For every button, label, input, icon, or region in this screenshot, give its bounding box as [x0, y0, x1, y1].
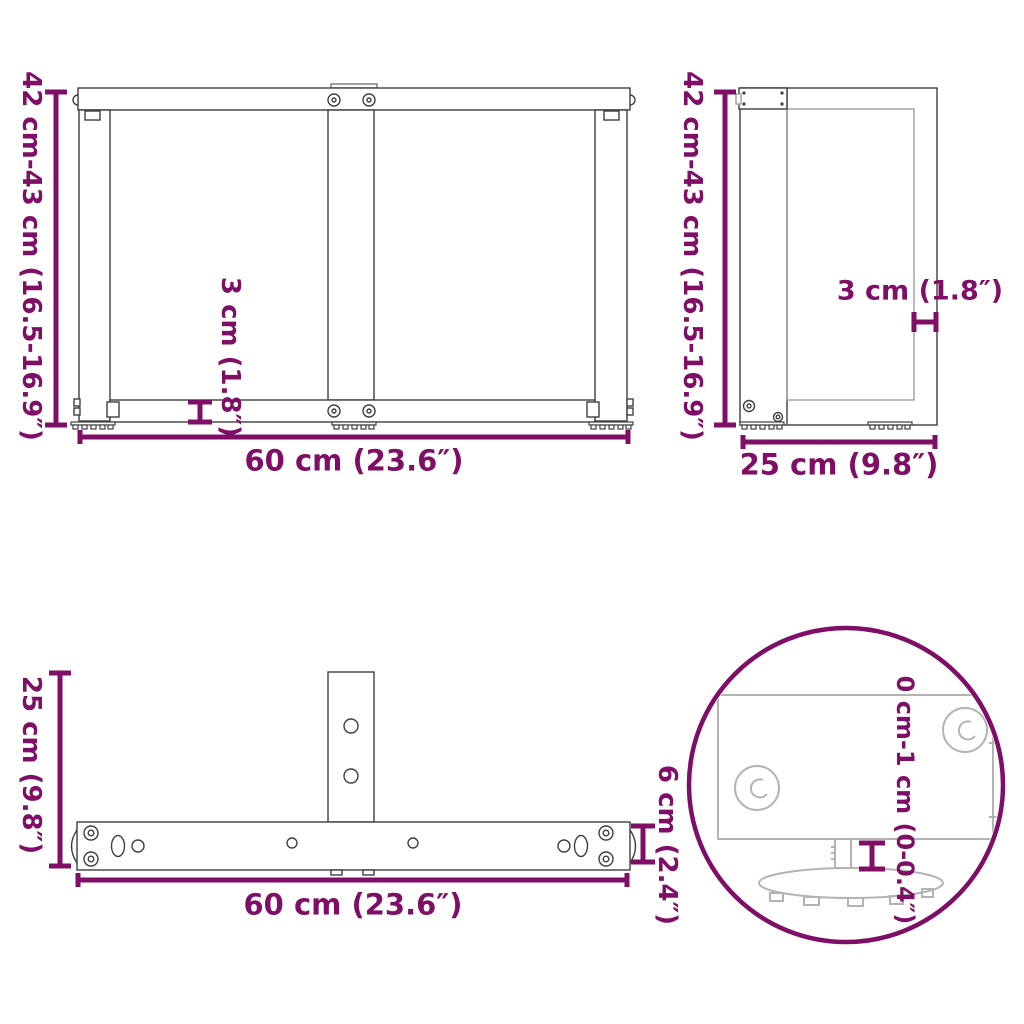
diagram-drawing [0, 0, 1024, 1024]
front-width-dimension-line [80, 430, 628, 444]
top-view-drawing [72, 672, 636, 875]
top-width-dimension-line [78, 873, 627, 887]
side-height-dimension-line [714, 92, 736, 425]
top-width-label: 60 cm (23.6″) [244, 891, 463, 920]
top-depth-label: 25 cm (9.8″) [18, 676, 44, 854]
front-width-label: 60 cm (23.6″) [245, 447, 464, 476]
side-thickness-label: 3 cm (1.8″) [837, 278, 1003, 305]
side-view-drawing [736, 88, 937, 429]
front-view-drawing [71, 84, 635, 429]
diagram-canvas: 42 cm-43 cm (16.5-16.9″) 3 cm (1.8″) 60 … [0, 0, 1024, 1024]
adjustable-foot-icon [71, 422, 633, 429]
detail-adjustment-label: 0 cm-1 cm (0-0.4″) [893, 676, 917, 925]
top-depth-dimension-line [49, 673, 71, 866]
front-height-label: 42 cm-43 cm (16.5-16.9″) [18, 71, 44, 441]
front-height-dimension-line [45, 92, 67, 425]
side-height-label: 42 cm-43 cm (16.5-16.9″) [679, 71, 705, 441]
front-thickness-label: 3 cm (1.8″) [217, 277, 243, 437]
top-bar-width-label: 6 cm (2.4″) [654, 765, 680, 925]
side-depth-label: 25 cm (9.8″) [740, 451, 939, 480]
